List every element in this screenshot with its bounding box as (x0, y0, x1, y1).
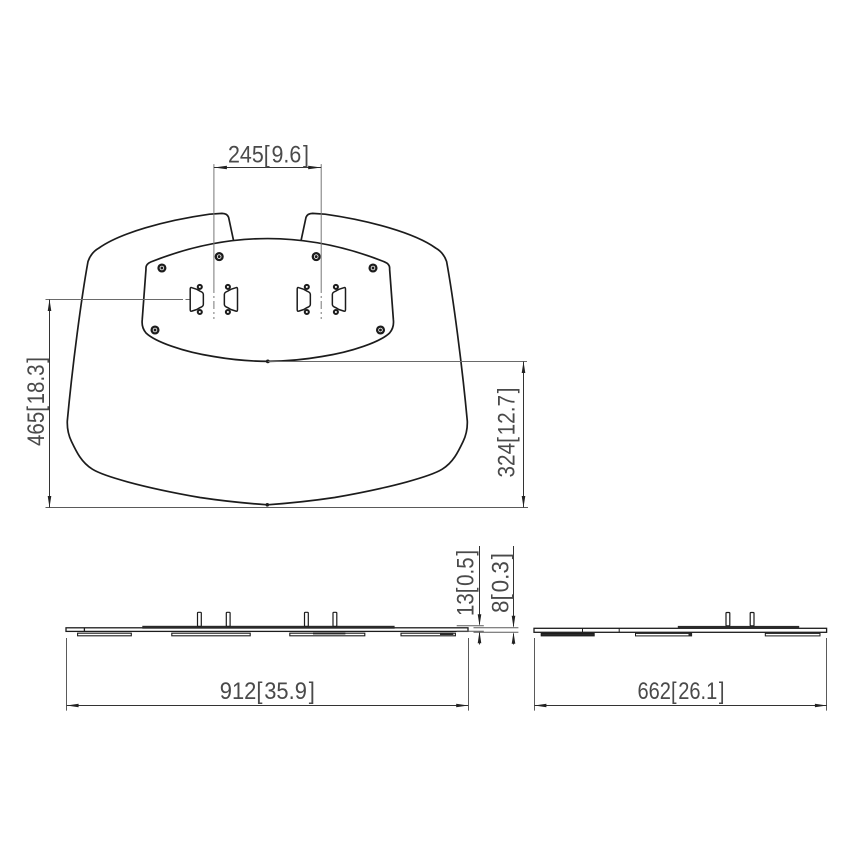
svg-text:324[ 12.7 ]: 324[ 12.7 ] (494, 388, 521, 478)
svg-text:13[ 0.5 ]: 13[ 0.5 ] (453, 550, 480, 616)
svg-text:245[ 9.6 ]: 245[ 9.6 ] (228, 141, 309, 168)
svg-text:662[ 26.1 ]: 662[ 26.1 ] (638, 678, 725, 705)
svg-text:912[ 35.9 ]: 912[ 35.9 ] (220, 678, 315, 705)
svg-text:8[ 0.3 ]: 8[ 0.3 ] (488, 553, 515, 613)
svg-text:465[ 18.3 ]: 465[ 18.3 ] (23, 357, 50, 446)
